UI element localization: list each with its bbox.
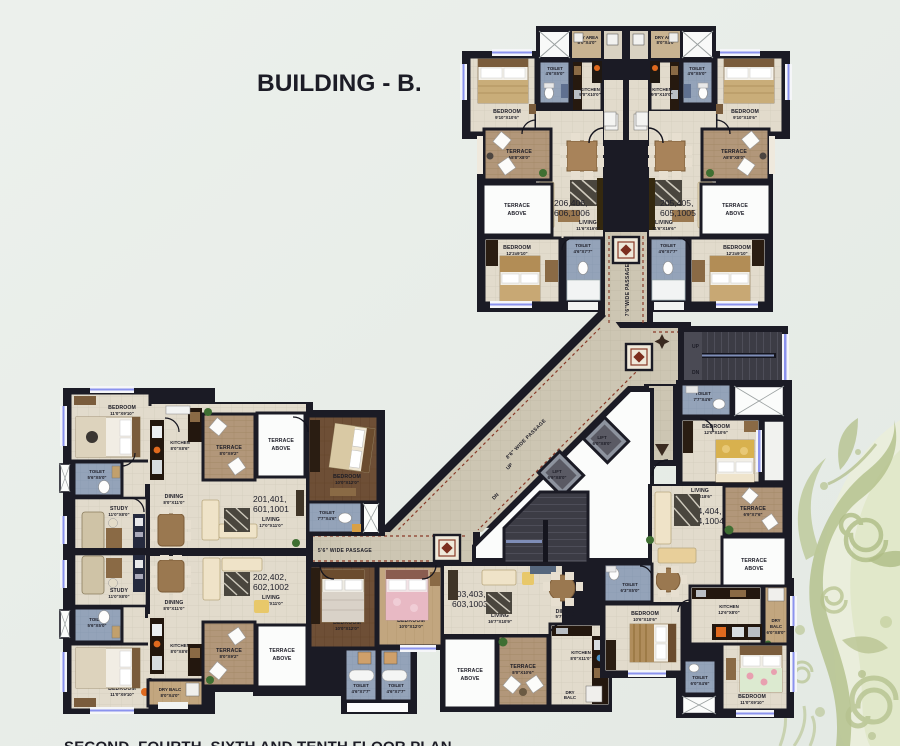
- svg-text:LIFT: LIFT: [552, 469, 562, 474]
- svg-text:DRY: DRY: [771, 618, 780, 623]
- svg-text:A8'8"X8'0": A8'8"X8'0": [723, 155, 745, 160]
- svg-text:201,401,: 201,401,: [253, 494, 286, 504]
- svg-text:11'6"X16'6": 11'6"X16'6": [576, 226, 600, 231]
- svg-text:12'6"X8'0": 12'6"X8'0": [718, 610, 739, 615]
- svg-text:10'0"X12'0": 10'0"X12'0": [399, 624, 423, 629]
- svg-text:TERRACE: TERRACE: [504, 203, 530, 209]
- svg-text:ABOVE: ABOVE: [508, 211, 527, 217]
- svg-text:8'0"X11'0": 8'0"X11'0": [163, 500, 184, 505]
- svg-text:7'7"X4'6": 7'7"X4'6": [694, 397, 713, 402]
- svg-text:11'0"X9'10": 11'0"X9'10": [740, 700, 764, 705]
- svg-text:5'7"X5'7": 5'7"X5'7": [556, 614, 575, 619]
- svg-text:10'0"X12'0": 10'0"X12'0": [335, 626, 359, 631]
- svg-text:8'0"X11'0": 8'0"X11'0": [163, 606, 184, 611]
- svg-text:BUILDING - B.: BUILDING - B.: [257, 70, 422, 97]
- svg-text:KITCHEN: KITCHEN: [719, 604, 739, 609]
- svg-text:A8'8"X8'0": A8'8"X8'0": [508, 155, 530, 160]
- svg-text:6'9"X7'6": 6'9"X7'6": [744, 512, 763, 517]
- svg-text:BALC: BALC: [564, 695, 577, 700]
- svg-text:11'0"X8'0": 11'0"X8'0": [108, 594, 129, 599]
- svg-text:TOILET: TOILET: [319, 510, 335, 515]
- svg-text:11'6"X16'6": 11'6"X16'6": [652, 226, 676, 231]
- svg-text:TOILET: TOILET: [353, 683, 369, 688]
- svg-text:602,1002: 602,1002: [253, 582, 289, 592]
- svg-text:TOILET: TOILET: [89, 469, 105, 474]
- svg-text:16'7"X10'9": 16'7"X10'9": [488, 619, 512, 624]
- svg-text:8'0"X9'2": 8'0"X9'2": [220, 451, 239, 456]
- svg-text:12'2x9'10": 12'2x9'10": [506, 251, 527, 256]
- svg-text:9'10"X10'6": 9'10"X10'6": [495, 115, 519, 120]
- svg-text:11'0"X9'10": 11'0"X9'10": [110, 692, 134, 697]
- svg-text:8'0"X4'0": 8'0"X4'0": [161, 693, 180, 698]
- svg-text:4'6"X5'0": 4'6"X5'0": [546, 71, 565, 76]
- svg-text:17'0"X11'0": 17'0"X11'0": [259, 523, 283, 528]
- svg-text:ABOVE: ABOVE: [272, 446, 291, 452]
- svg-text:8'0"X9'2": 8'0"X9'2": [220, 654, 239, 659]
- svg-text:BALC: BALC: [770, 624, 783, 629]
- svg-text:9'0"X10'0": 9'0"X10'0": [651, 92, 672, 97]
- svg-text:10'6"X10'6": 10'6"X10'6": [633, 617, 657, 622]
- svg-text:12'2x9'10": 12'2x9'10": [726, 251, 747, 256]
- svg-text:10'0"X12'0": 10'0"X12'0": [335, 480, 359, 485]
- svg-text:TERRACE: TERRACE: [269, 648, 295, 654]
- svg-text:6'3"X5'0": 6'3"X5'0": [621, 588, 640, 593]
- svg-text:DN: DN: [692, 370, 700, 376]
- svg-text:7'7"X4'6": 7'7"X4'6": [318, 516, 337, 521]
- svg-text:8'0"X8'6": 8'0"X8'6": [171, 446, 190, 451]
- svg-text:11'0"X8'0": 11'0"X8'0": [108, 512, 129, 517]
- svg-text:SECOND, FOURTH, SIXTH AND TENT: SECOND, FOURTH, SIXTH AND TENTH FLOOR PL…: [64, 739, 452, 746]
- svg-text:KITCHEN: KITCHEN: [170, 440, 190, 445]
- svg-text:TERRACE: TERRACE: [457, 668, 483, 674]
- svg-text:KITCHEN: KITCHEN: [170, 643, 190, 648]
- svg-text:7'6"WIDE PASSAGE: 7'6"WIDE PASSAGE: [625, 263, 631, 316]
- svg-text:5'6"X5'0": 5'6"X5'0": [88, 475, 107, 480]
- svg-text:603,1003: 603,1003: [452, 599, 488, 609]
- svg-text:ABOVE: ABOVE: [461, 676, 480, 682]
- svg-text:TERRACE: TERRACE: [268, 438, 294, 444]
- svg-text:4'6"X7'7": 4'6"X7'7": [659, 249, 678, 254]
- svg-text:601,1001: 601,1001: [253, 504, 289, 514]
- svg-text:6'0"X8'0": 6'0"X8'0": [767, 630, 786, 635]
- svg-text:12'0"X10'6": 12'0"X10'6": [704, 430, 728, 435]
- svg-text:TOILET: TOILET: [692, 675, 708, 680]
- svg-text:206,406,: 206,406,: [554, 198, 587, 208]
- svg-text:DRY BALC: DRY BALC: [159, 687, 182, 692]
- svg-text:TOILET: TOILET: [575, 243, 591, 248]
- svg-text:4'6"X7'7": 4'6"X7'7": [387, 689, 406, 694]
- svg-text:9'10"X10'6": 9'10"X10'6": [733, 115, 757, 120]
- svg-text:606,1006: 606,1006: [554, 208, 590, 218]
- svg-text:TOILET: TOILET: [388, 683, 404, 688]
- svg-text:205,405,: 205,405,: [660, 198, 693, 208]
- svg-text:4'6"X5'0": 4'6"X5'0": [688, 71, 707, 76]
- svg-text:6'0"X4'6": 6'0"X4'6": [691, 681, 710, 686]
- svg-text:ABOVE: ABOVE: [726, 211, 745, 217]
- svg-text:TERRACE: TERRACE: [741, 558, 767, 564]
- svg-text:UP: UP: [692, 344, 700, 350]
- svg-text:9'0"X10'0": 9'0"X10'0": [579, 92, 600, 97]
- svg-text:4'6"X7'7": 4'6"X7'7": [352, 689, 371, 694]
- svg-text:605,1005: 605,1005: [660, 208, 696, 218]
- svg-text:4'6"X7'7": 4'6"X7'7": [574, 249, 593, 254]
- svg-text:11'0"X9'10": 11'0"X9'10": [110, 411, 134, 416]
- svg-text:6'9"X8'0": 6'9"X8'0": [548, 475, 567, 480]
- svg-text:TERRACE: TERRACE: [722, 203, 748, 209]
- svg-text:ABOVE: ABOVE: [273, 656, 292, 662]
- svg-text:TOILET: TOILET: [660, 243, 676, 248]
- svg-text:ABOVE: ABOVE: [745, 566, 764, 572]
- svg-text:6'0"X8'0": 6'0"X8'0": [593, 441, 612, 446]
- svg-text:202,402,: 202,402,: [253, 572, 286, 582]
- svg-text:TOILET: TOILET: [622, 582, 638, 587]
- svg-text:8'0"X8'6": 8'0"X8'6": [171, 649, 190, 654]
- svg-text:LIFT: LIFT: [597, 435, 607, 440]
- svg-text:KITCHEN: KITCHEN: [571, 650, 591, 655]
- svg-text:5'6" WIDE PASSAGE: 5'6" WIDE PASSAGE: [318, 548, 372, 554]
- svg-text:8'0"X11'0": 8'0"X11'0": [570, 656, 591, 661]
- svg-text:8'0"X10'6": 8'0"X10'6": [512, 670, 533, 675]
